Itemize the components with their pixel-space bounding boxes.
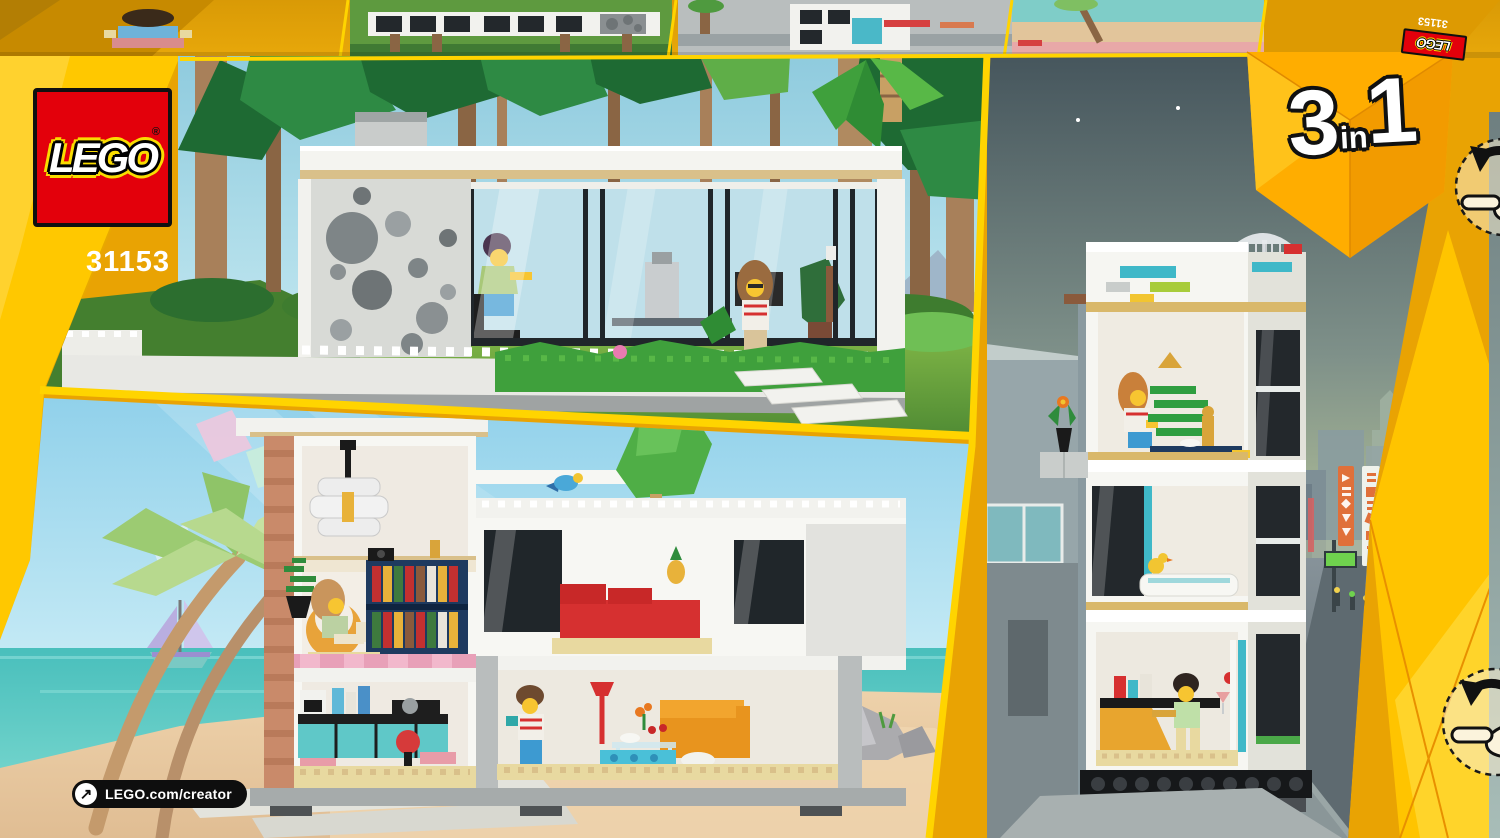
flap-thumb-beach — [1012, 0, 1264, 58]
brick-column — [264, 436, 294, 794]
arrow-up-right-icon: ↗ — [75, 783, 97, 805]
lego-logo-text: LEGO — [49, 134, 156, 182]
badge-3in1-text: 3 in 1 — [1260, 73, 1446, 170]
badge-digit-3: 3 — [1286, 79, 1342, 169]
url-pill: ↗ LEGO.com/creator — [72, 780, 247, 808]
lego-box-back: LEGO ® 31153 3 in 1 LEGO 31153 ↗ LEGO.co… — [0, 0, 1500, 838]
badge-word-in: in — [1339, 119, 1368, 156]
scene-beach-family-house — [0, 390, 990, 838]
flap-thumb-city — [678, 0, 1012, 58]
scene-forest-modern-house — [44, 56, 988, 440]
registered-trademark: ® — [152, 126, 160, 138]
set-number: 31153 — [86, 246, 170, 279]
top-flap — [0, 0, 1500, 58]
flap-thumb-modern-house — [350, 0, 672, 58]
lego-logo: LEGO ® — [33, 88, 172, 227]
badge-digit-1: 1 — [1364, 67, 1420, 157]
url-text: LEGO.com/creator — [105, 786, 232, 802]
